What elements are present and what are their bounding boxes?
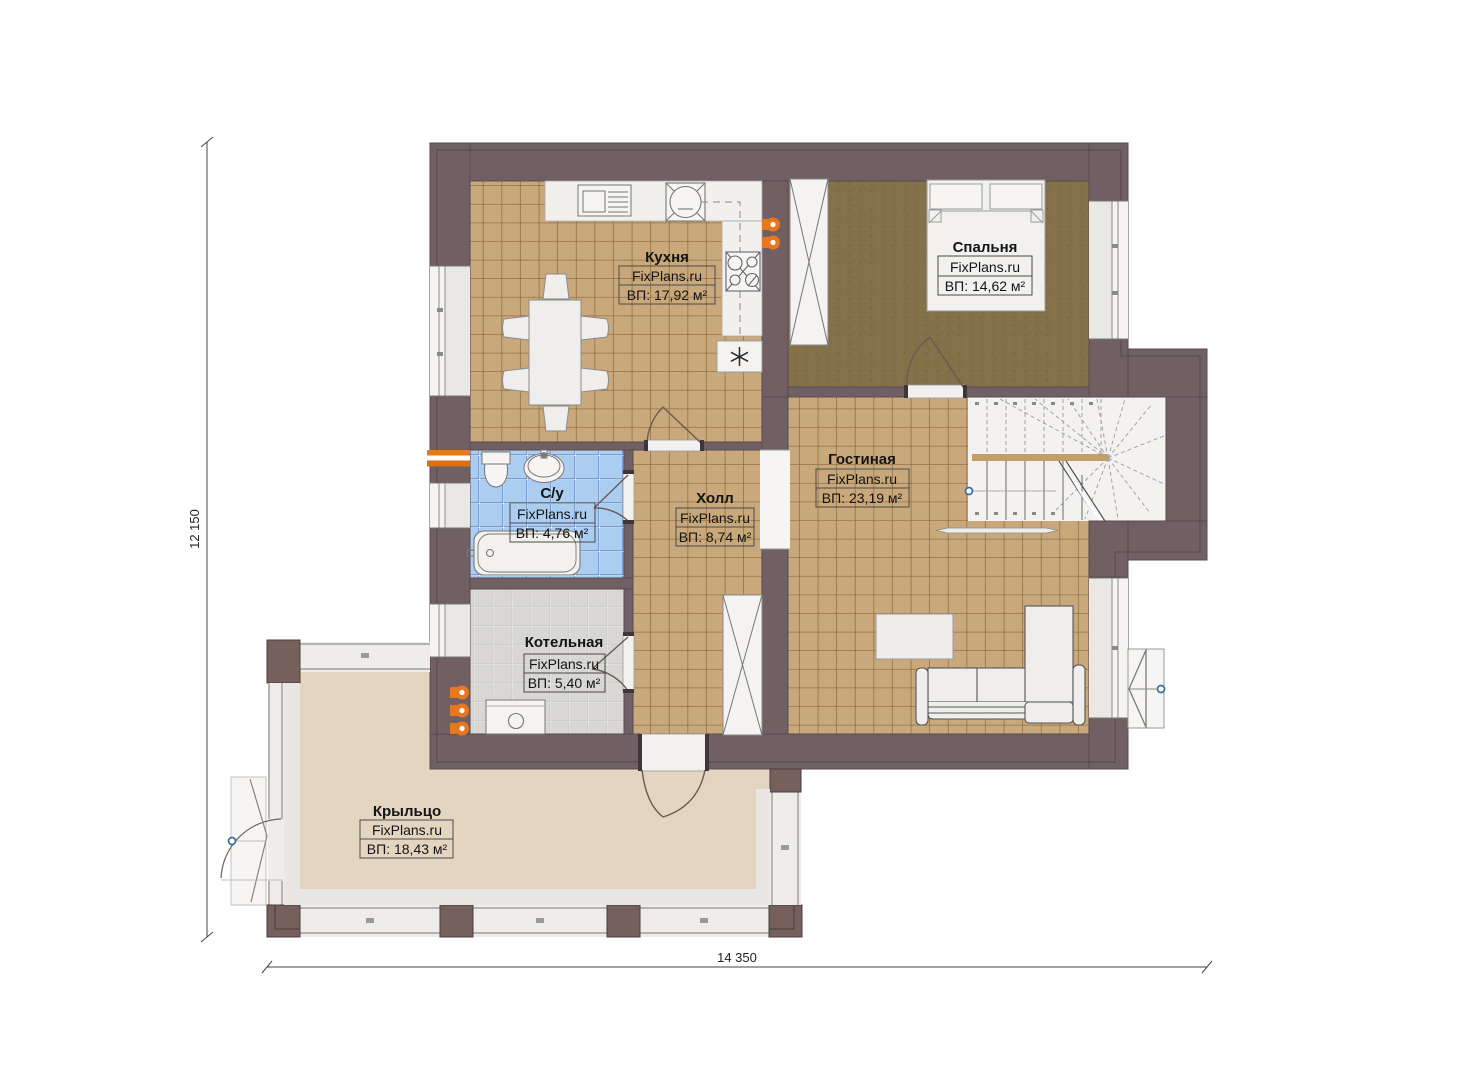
- svg-text:ВП: 23,19 м²: ВП: 23,19 м²: [822, 490, 903, 506]
- svg-text:ВП: 5,40 м²: ВП: 5,40 м²: [528, 675, 601, 691]
- svg-text:ВП: 18,43 м²: ВП: 18,43 м²: [367, 841, 448, 857]
- svg-text:ВП: 17,92 м²: ВП: 17,92 м²: [627, 287, 708, 303]
- svg-text:14 350: 14 350: [717, 950, 757, 965]
- svg-text:FixPlans.ru: FixPlans.ru: [680, 510, 750, 526]
- svg-text:Гостиная: Гостиная: [828, 451, 896, 468]
- svg-text:FixPlans.ru: FixPlans.ru: [372, 822, 442, 838]
- svg-text:ВП: 4,76 м²: ВП: 4,76 м²: [516, 525, 589, 541]
- svg-text:12 150: 12 150: [187, 509, 202, 549]
- svg-text:Спальня: Спальня: [953, 239, 1018, 256]
- svg-text:FixPlans.ru: FixPlans.ru: [529, 656, 599, 672]
- svg-text:ВП: 14,62 м²: ВП: 14,62 м²: [945, 278, 1026, 294]
- svg-text:FixPlans.ru: FixPlans.ru: [950, 259, 1020, 275]
- svg-text:Холл: Холл: [696, 490, 734, 507]
- svg-text:FixPlans.ru: FixPlans.ru: [517, 506, 587, 522]
- svg-text:Котельная: Котельная: [525, 634, 604, 651]
- svg-text:FixPlans.ru: FixPlans.ru: [632, 268, 702, 284]
- svg-text:С/у: С/у: [540, 485, 564, 502]
- svg-text:FixPlans.ru: FixPlans.ru: [827, 471, 897, 487]
- svg-text:Кухня: Кухня: [645, 249, 689, 266]
- svg-text:ВП: 8,74 м²: ВП: 8,74 м²: [679, 529, 752, 545]
- svg-text:Крыльцо: Крыльцо: [373, 803, 441, 820]
